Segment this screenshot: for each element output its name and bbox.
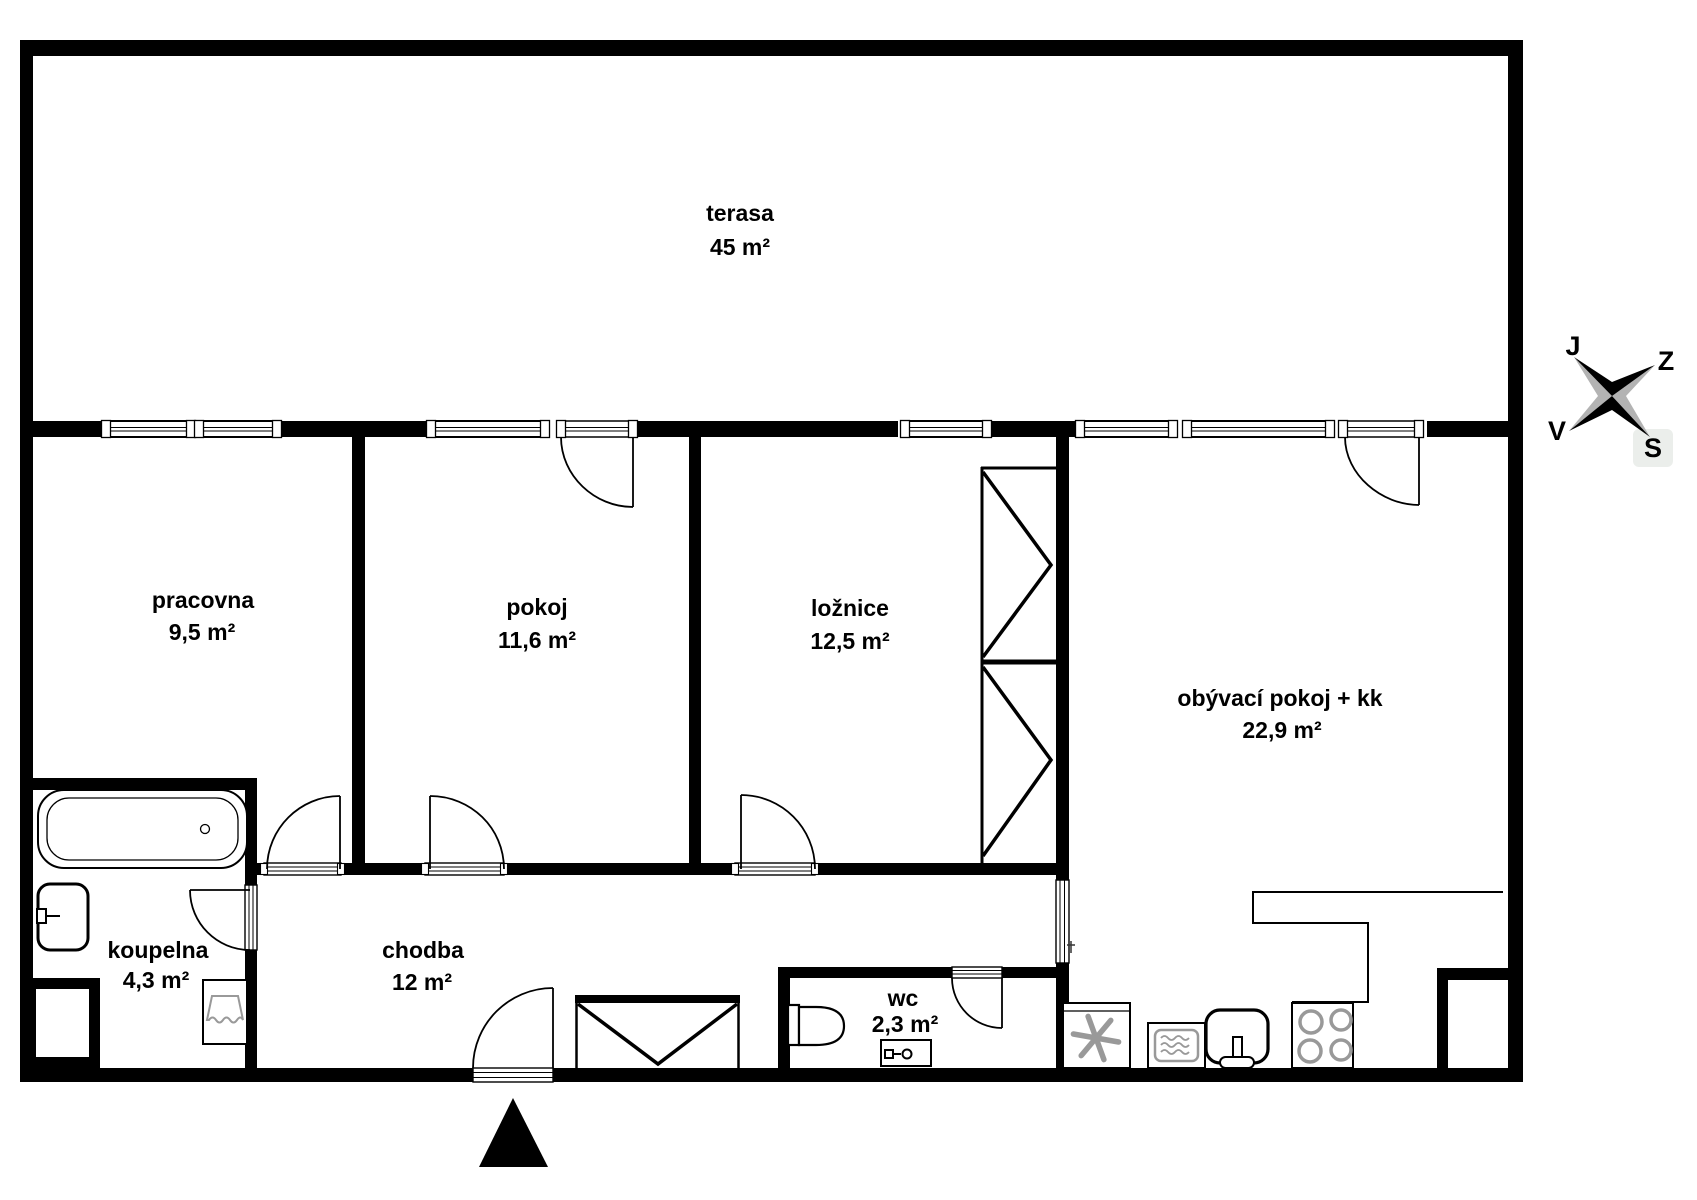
wall-pokoj-loznice [689,437,701,863]
door-pracovna [267,796,340,869]
room-label-pokoj: pokoj [506,594,567,620]
toilet [788,1005,844,1045]
door-wc [952,978,1002,1028]
wardrobe-loznice [981,467,1056,863]
floor-plan: terasa 45 m² pracovna 9,5 m² pokoj 11,6 … [0,0,1697,1200]
wall-livingroom-left-upper [1056,433,1069,880]
stove-icon [1292,1003,1353,1068]
compass-label-north: S [1644,433,1662,463]
window [905,421,987,437]
laundry-basket [203,980,247,1044]
window [431,421,545,437]
hand-basin [881,1040,931,1066]
fridge-icon [1063,1003,1130,1068]
door-loznice-hall [741,795,815,869]
entrance-arrow [479,1098,548,1167]
door-pokoj-hall [430,796,504,869]
outer-wall-right [1508,40,1523,1082]
window [106,421,191,437]
compass-rose: J Z V S [1548,331,1674,467]
room-label-obyvaci-pokoj: obývací pokoj + kk [1177,685,1382,711]
terrace-door-threshold [561,421,633,437]
floor-plan-canvas: terasa 45 m² pracovna 9,5 m² pokoj 11,6 … [0,0,1697,1200]
door-threshold-pracovna [264,863,341,875]
door-pokoj-terrace [561,437,633,507]
room-area-wc: 2,3 m² [872,1011,939,1037]
window [1080,421,1173,437]
kitchen-counter [1253,892,1503,1002]
room-area-chodba: 12 m² [392,969,452,995]
entrance-threshold [473,1068,553,1082]
compass-star [1569,357,1655,437]
door-threshold-pokoj [425,863,504,875]
outer-wall-top [20,40,1508,56]
room-area-pokoj: 11,6 m² [498,627,576,653]
room-labels: terasa 45 m² pracovna 9,5 m² pokoj 11,6 … [108,200,1383,1037]
door-livingroom-terrace [1345,437,1419,505]
duct-shaft-inner [36,989,89,1057]
room-label-pracovna: pracovna [152,587,254,613]
washbasin [37,884,88,950]
room-area-koupelna: 4,3 m² [123,967,190,993]
passage-chodba-livingroom [1056,880,1069,963]
terrace-door-threshold [1343,421,1419,437]
door-entrance [473,988,553,1068]
window [1187,421,1330,437]
wall-koupelna-top [20,778,257,790]
door-threshold-loznice [735,863,815,875]
outer-wall-left [20,40,33,1082]
room-area-pracovna: 9,5 m² [169,619,236,645]
kitchen-sink-icon [1206,1010,1268,1068]
room-label-koupelna: koupelna [108,937,209,963]
compass-label-south: J [1565,331,1580,361]
microwave-icon [1148,1023,1205,1068]
compass-label-east: V [1548,416,1566,446]
room-label-wc: wc [887,985,919,1011]
room-area-obyvaci-pokoj: 22,9 m² [1242,717,1322,743]
compass-label-west: Z [1658,346,1675,376]
room-label-chodba: chodba [382,937,464,963]
room-area-terasa: 45 m² [710,234,770,260]
room-area-loznice: 12,5 m² [810,628,890,654]
bathtub [38,790,247,868]
door-threshold-wc [952,967,1002,978]
outer-wall-bottom [20,1068,1523,1082]
room-label-terasa: terasa [706,200,774,226]
window [199,421,277,437]
door-threshold-koupelna [245,885,257,950]
wall-pracovna-pokoj [352,437,365,863]
entrance-wardrobe [577,1003,739,1068]
room-label-loznice: ložnice [811,595,889,621]
